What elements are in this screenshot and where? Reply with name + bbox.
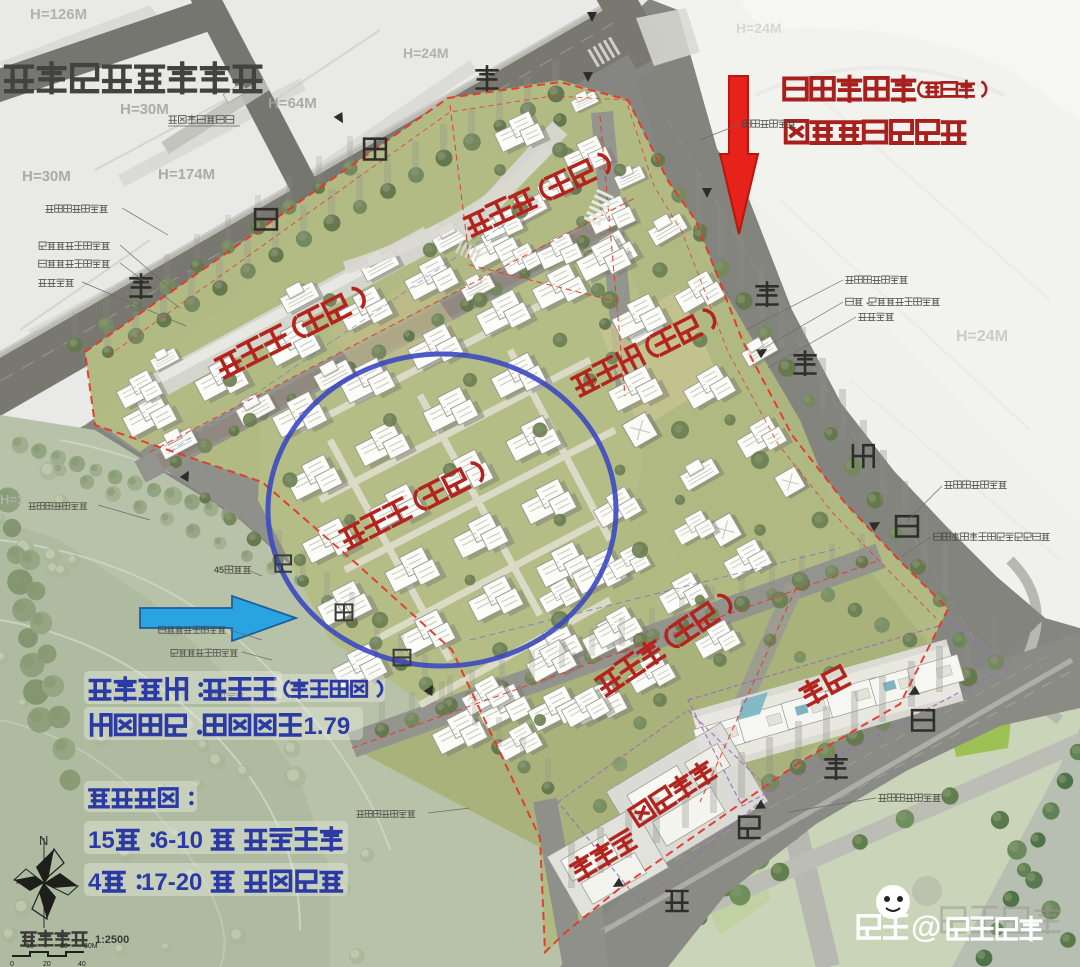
svg-text:15: 15 (88, 827, 115, 854)
svg-text:6-10: 6-10 (155, 827, 203, 854)
svg-text:H=24M: H=24M (403, 45, 449, 61)
svg-text:17-20: 17-20 (141, 869, 202, 896)
svg-text:H=1: H=1 (0, 492, 24, 507)
svg-text:H=174M: H=174M (158, 166, 215, 183)
svg-text:H=30M: H=30M (120, 101, 169, 118)
svg-text:20: 20 (43, 961, 51, 967)
svg-text:30: 30 (60, 943, 68, 950)
svg-text:H=126M: H=126M (30, 6, 87, 23)
svg-text:H=24M: H=24M (956, 328, 1008, 345)
svg-text:40: 40 (78, 961, 86, 967)
svg-text:0: 0 (10, 961, 14, 967)
svg-text:H=64M: H=64M (268, 95, 317, 112)
svg-text:H=30M: H=30M (22, 168, 71, 185)
svg-text:4: 4 (88, 869, 102, 896)
svg-text:H=24M: H=24M (736, 20, 782, 36)
svg-text:@: @ (911, 909, 941, 944)
svg-text:50M: 50M (84, 943, 98, 950)
svg-text:10: 10 (26, 943, 34, 950)
svg-text:45: 45 (214, 565, 224, 575)
svg-text:1.79: 1.79 (304, 713, 351, 740)
svg-text:1:2500: 1:2500 (95, 934, 129, 946)
